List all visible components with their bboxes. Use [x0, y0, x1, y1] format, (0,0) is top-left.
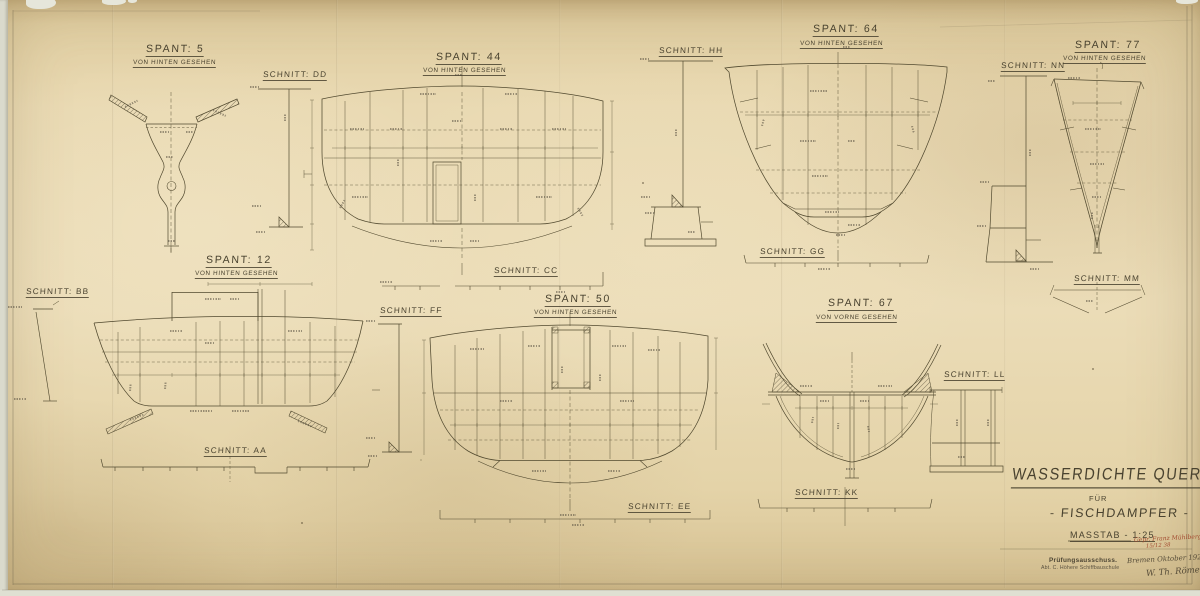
schnitt-ll-label: SCHNITT: LL — [944, 371, 1006, 381]
annotation-mark — [560, 514, 576, 516]
schnitt-bb-label: SCHNITT: BB — [26, 288, 90, 298]
annotation-mark — [837, 423, 839, 429]
annotation-mark — [368, 455, 377, 457]
annotation-mark — [846, 468, 856, 470]
spant-64-drawing — [725, 52, 947, 261]
annotation-mark — [800, 385, 812, 387]
annotation-mark — [572, 524, 585, 526]
annotation-mark — [810, 90, 828, 92]
annotation-mark — [640, 58, 650, 60]
annotation-mark — [186, 131, 194, 133]
annotation-mark — [552, 128, 566, 130]
spant-77-subtitle: VON HINTEN GESEHEN — [1063, 56, 1147, 64]
schnitt-nn-drawing — [986, 76, 1053, 262]
dimension-row — [112, 282, 340, 377]
annotation-mark — [641, 196, 650, 198]
annotation-mark — [800, 140, 816, 142]
schnitt-aa-label: SCHNITT: AA — [204, 447, 267, 457]
annotation-mark — [288, 330, 302, 332]
annotation-mark — [455, 74, 463, 76]
annotation-mark — [205, 342, 215, 344]
dimension-row — [420, 338, 718, 460]
drawing-sheet: SPANT: 5 VON HINTEN GESEHEN SPANT: 44 VO… — [0, 0, 1200, 596]
spant-44-drawing — [310, 66, 614, 275]
annotation-mark — [608, 470, 620, 472]
annotation-mark — [843, 46, 851, 48]
schnitt-mm-label: SCHNITT: MM — [1074, 275, 1141, 285]
schnitt-dd-label: SCHNITT: DD — [263, 71, 328, 81]
annotation-mark — [252, 205, 261, 207]
annotation-mark — [205, 298, 221, 300]
spant-67-title: SPANT: 67 — [828, 298, 895, 311]
annotation-mark — [980, 181, 989, 183]
annotation-mark — [1092, 196, 1102, 198]
annotation-mark — [825, 211, 839, 213]
annotation-mark — [688, 231, 696, 233]
annotation-mark — [1030, 268, 1040, 270]
annotation-mark — [250, 86, 260, 88]
schnitt-cc-label: SCHNITT: CC — [494, 267, 559, 277]
annotation-mark — [988, 80, 996, 82]
annotation-mark — [505, 93, 517, 95]
annotation-mark — [390, 128, 402, 130]
annotation-mark — [528, 345, 540, 347]
annotation-mark — [160, 131, 170, 133]
annotation-mark — [820, 400, 830, 402]
annotation-mark — [230, 298, 240, 300]
annotation-mark — [561, 366, 563, 373]
spant-77-drawing — [1051, 62, 1144, 253]
schnitt-hh-label: SCHNITT: HH — [659, 47, 724, 57]
spant-77-title: SPANT: 77 — [1075, 40, 1142, 53]
annotation-mark — [977, 225, 986, 227]
annotation-mark — [166, 156, 174, 158]
annotation-mark — [536, 196, 552, 198]
annotation-mark — [1029, 149, 1031, 156]
sheet-subject: - FISCHDAMPFER - — [1049, 507, 1190, 520]
spant-12-drawing — [94, 282, 363, 434]
stamp-line2: Abt. C. Höhere Schiffbauschule — [1041, 566, 1119, 571]
annotation-mark — [860, 400, 870, 402]
annotation-mark — [232, 410, 250, 412]
annotation-mark — [836, 234, 846, 236]
annotation-mark — [818, 268, 830, 270]
spant-50-title: SPANT: 50 — [545, 294, 612, 307]
annotation-mark — [380, 281, 392, 283]
annotation-mark — [470, 240, 480, 242]
annotation-mark — [8, 306, 22, 308]
schnitt-kk-label: SCHNITT: KK — [795, 489, 859, 499]
annotation-mark — [14, 398, 26, 400]
spant-44-title: SPANT: 44 — [436, 52, 503, 65]
annotation-mark — [556, 291, 566, 293]
annotation-mark — [366, 437, 375, 439]
annotation-mark — [1086, 300, 1094, 302]
spant-50-subtitle: VON HINTEN GESEHEN — [534, 310, 618, 318]
annotation-mark — [675, 129, 677, 136]
schnitt-bb-drawing — [33, 301, 59, 401]
annotation-mark — [256, 231, 265, 233]
annotation-mark — [366, 320, 376, 322]
schnitt-ff-drawing — [372, 324, 412, 452]
annotation-mark — [350, 128, 364, 130]
spant-64-title: SPANT: 64 — [813, 24, 880, 37]
annotation-mark — [878, 385, 892, 387]
spant-5-title: SPANT: 5 — [146, 44, 205, 57]
schnitt-ff-label: SCHNITT: FF — [380, 307, 443, 317]
annotation-mark — [599, 374, 601, 381]
annotation-mark — [956, 419, 958, 426]
annotation-mark — [500, 128, 512, 130]
spant-50-drawing — [420, 312, 718, 523]
annotation-mark — [352, 196, 368, 198]
spant-67-drawing — [762, 343, 941, 478]
annotation-mark — [170, 330, 182, 332]
annotation-mark — [532, 470, 546, 472]
annotation-mark — [470, 348, 484, 350]
annotation-mark — [1090, 163, 1104, 165]
annotation-mark — [1091, 212, 1093, 219]
spant-12-subtitle: VON HINTEN GESEHEN — [195, 271, 279, 279]
annotation-mark — [284, 114, 286, 121]
annotation-mark — [430, 240, 442, 242]
annotation-mark — [620, 400, 634, 402]
spant-5-drawing — [109, 92, 239, 253]
annotation-mark — [612, 345, 626, 347]
spant-64-subtitle: VON HINTEN GESEHEN — [800, 41, 884, 49]
annotation-mark — [648, 349, 660, 351]
annotation-mark — [500, 400, 512, 402]
schnitt-cc-drawing — [382, 272, 603, 290]
schnitt-gg-label: SCHNITT: GG — [760, 248, 826, 258]
schnitt-nn-label: SCHNITT: NN — [1001, 62, 1066, 72]
annotation-mark — [474, 194, 476, 201]
dimension-row — [745, 113, 930, 117]
schnitt-hh-drawing — [645, 61, 716, 246]
spant-12-title: SPANT: 12 — [206, 255, 273, 268]
spant-67-subtitle: VON VORNE GESEHEN — [816, 315, 898, 323]
annotation-mark — [958, 456, 966, 458]
schnitt-dd-drawing — [258, 89, 312, 227]
annotation-mark — [848, 224, 860, 226]
dimension-row — [1073, 101, 1121, 105]
annotation-mark — [987, 419, 989, 426]
sheet-title: WASSERDICHTE QUERSCHOTTE — [1011, 467, 1200, 488]
annotation-mark — [1085, 128, 1101, 130]
spant-5-subtitle: VON HINTEN GESEHEN — [133, 60, 217, 68]
stamp-line1: Prüfungsausschuss. — [1049, 558, 1117, 564]
annotation-mark — [397, 159, 399, 166]
annotation-mark — [452, 120, 462, 122]
annotation-mark — [190, 410, 212, 412]
schnitt-mm-drawing — [1050, 282, 1145, 313]
annotation-mark — [812, 175, 828, 177]
schnitt-ee-label: SCHNITT: EE — [628, 503, 692, 513]
annotation-mark — [420, 93, 436, 95]
annotation-mark — [848, 140, 856, 142]
annotation-mark — [168, 240, 176, 242]
sheet-title-fuer: FÜR — [1089, 495, 1107, 503]
spant-44-subtitle: VON HINTEN GESEHEN — [423, 68, 507, 76]
annotation-mark — [645, 212, 654, 214]
annotation-mark — [1068, 77, 1080, 79]
schnitt-ll-drawing — [930, 387, 1003, 472]
